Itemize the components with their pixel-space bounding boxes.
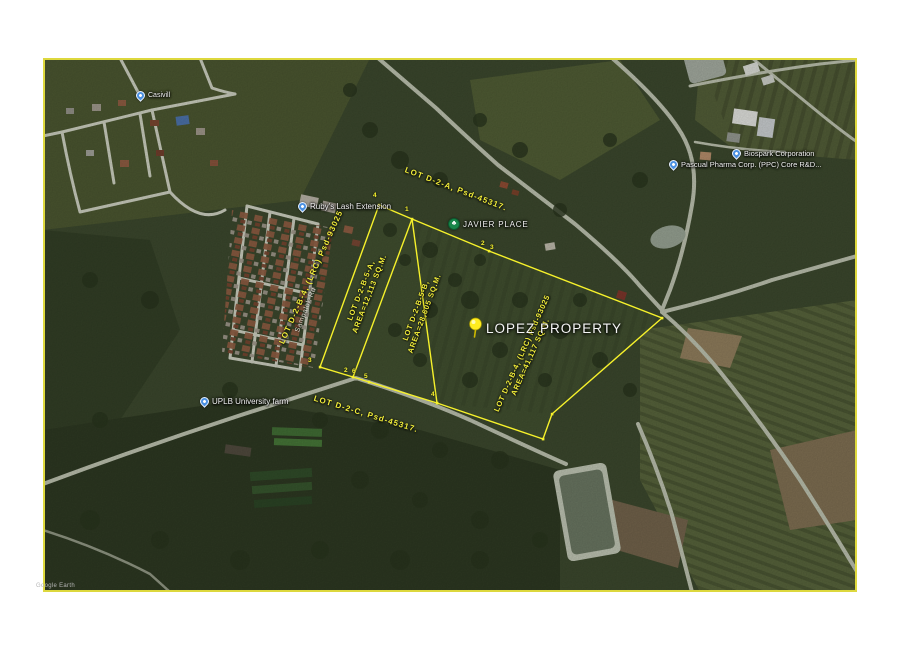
place-label: Casivill — [148, 92, 170, 99]
place-label: Ruby's Lash Extension — [310, 202, 391, 211]
place-label: LOPEZ PROPERTY — [486, 321, 622, 336]
page: LOT D-2-A, Psd-45317. LOT D-2-B-4, (LRC)… — [0, 0, 900, 650]
place-uplb-university-farm: UPLB University farm — [200, 397, 288, 406]
place-label: JAVIER PLACE — [463, 220, 528, 229]
vertex-number: 4 — [373, 192, 377, 199]
map-canvas — [43, 58, 857, 592]
place-casivill: Casivill — [136, 91, 170, 100]
tree-icon[interactable]: ♣ — [448, 218, 460, 230]
place-pin-icon[interactable] — [198, 395, 211, 408]
place-pascual-pharma: Pascual Pharma Corp. (PPC) Core R&D... — [669, 160, 821, 169]
place-javier-place: ♣ JAVIER PLACE — [448, 218, 528, 230]
pushpin-icon[interactable] — [468, 317, 483, 339]
vertex-number: 3 — [490, 244, 494, 251]
place-pin-icon[interactable] — [296, 200, 309, 213]
place-pin-icon[interactable] — [667, 158, 680, 171]
place-label: UPLB University farm — [212, 397, 288, 406]
google-earth-watermark: Google Earth — [36, 583, 75, 589]
place-label: Biospark Corporation — [744, 149, 814, 158]
place-biospark-corporation: Biospark Corporation — [732, 149, 814, 158]
vertex-number: 2 — [481, 240, 485, 247]
vertex-number: 6 — [352, 368, 356, 375]
vertex-number: 1 — [405, 206, 409, 213]
vertex-number: 2 — [344, 367, 348, 374]
vertex-number: 5 — [364, 373, 368, 380]
place-pin-icon[interactable] — [730, 147, 743, 160]
vertex-number: 4 — [431, 391, 435, 398]
vertex-number: 3 — [308, 357, 312, 364]
place-label: Pascual Pharma Corp. (PPC) Core R&D... — [681, 160, 821, 169]
satellite-map[interactable] — [43, 58, 857, 592]
place-lopez-property: LOPEZ PROPERTY — [468, 317, 622, 339]
place-pin-icon[interactable] — [134, 89, 147, 102]
place-rubys-lash-extension: Ruby's Lash Extension — [298, 202, 391, 211]
